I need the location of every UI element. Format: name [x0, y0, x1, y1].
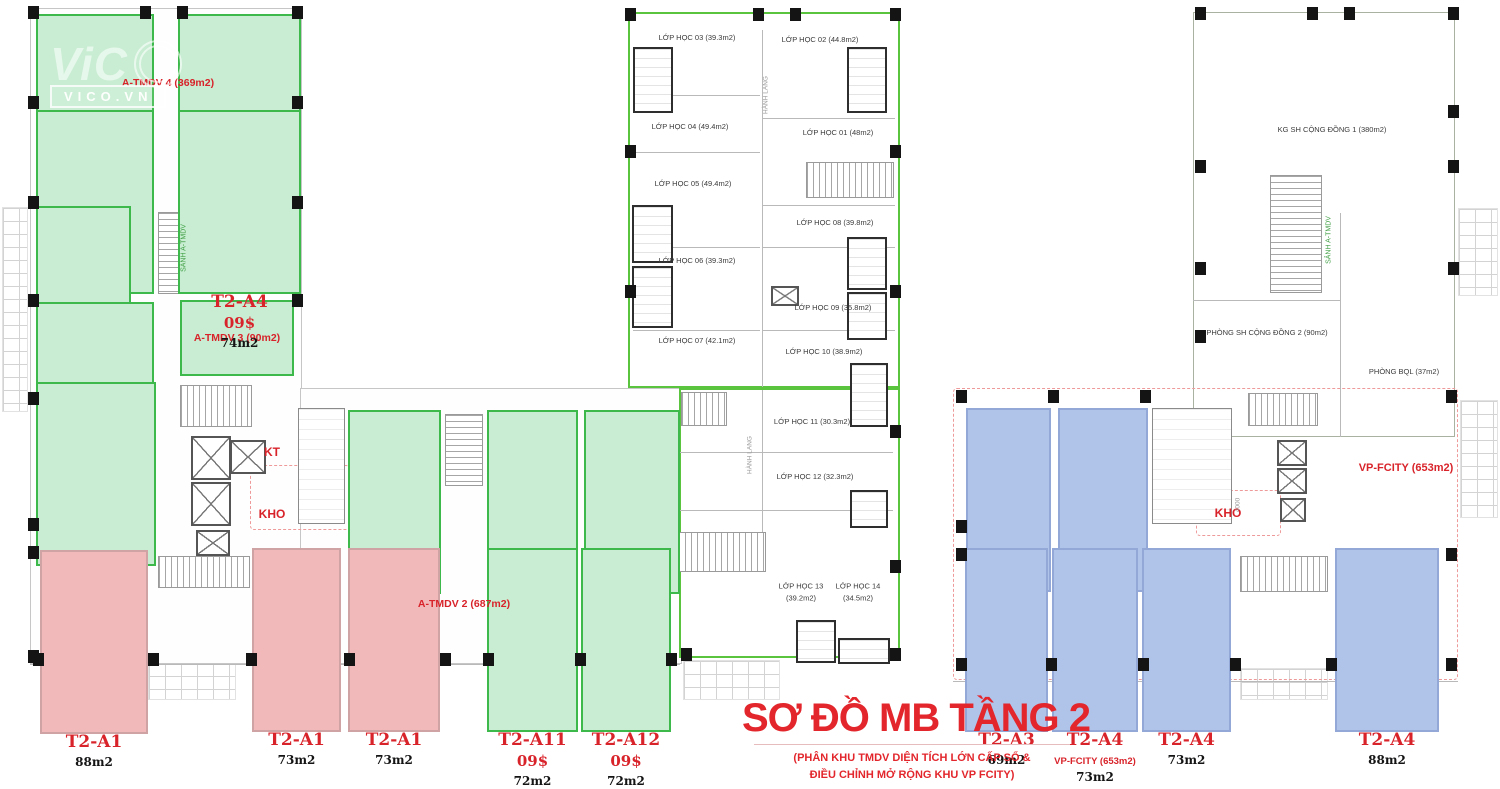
column-marker [1448, 7, 1459, 20]
staircase [806, 162, 894, 198]
column-marker [1344, 7, 1355, 20]
unit-t2-a12: T2-A1209$72m2 [581, 548, 671, 732]
column-marker [666, 653, 677, 666]
service-core [298, 408, 345, 524]
unit-t2-a1: T2-A188m2 [40, 550, 148, 734]
column-marker [956, 548, 967, 561]
title-divider [754, 744, 1070, 745]
column-marker [1046, 658, 1057, 671]
watermark: ViC VICO.VN [50, 40, 182, 108]
unit-t2-a7: T2-A709$90m2A-TMDV 1 (264m2) [36, 382, 156, 566]
elevator [1280, 498, 1306, 522]
column-marker [1138, 658, 1149, 671]
column-marker [1195, 7, 1206, 20]
unit-area: 73m2 [375, 753, 413, 769]
column-marker [292, 196, 303, 209]
column-marker [28, 546, 39, 559]
hatch-area [1460, 400, 1498, 518]
wall-line [633, 152, 760, 153]
room-label: LỚP HỌC 03 (39.3m2) [659, 32, 736, 44]
elevator [1277, 440, 1307, 466]
column-marker [28, 392, 39, 405]
plan-title: SƠ ĐỒ MB TẦNG 2 [742, 696, 1082, 741]
column-marker [1446, 658, 1457, 671]
column-marker [292, 6, 303, 19]
column-marker [1446, 390, 1457, 403]
column-marker [1230, 658, 1241, 671]
column-marker [1195, 262, 1206, 275]
plan-label: SẢNH A-TMDV [181, 224, 188, 272]
unit-area: 72m2 [607, 774, 645, 789]
room-label: LỚP HỌC 08 (39.8m2) [797, 217, 874, 229]
watermark-text: VICO.VN [50, 85, 166, 108]
wc-room [847, 237, 887, 290]
unit-name: T2-A1 [66, 732, 123, 753]
elevator [230, 440, 266, 474]
column-marker [1048, 390, 1059, 403]
column-marker [890, 285, 901, 298]
plan-title-block: SƠ ĐỒ MB TẦNG 2 (PHÂN KHU TMDV DIỆN TÍCH… [742, 696, 1082, 784]
elevator [1277, 468, 1307, 494]
column-marker [625, 145, 636, 158]
vico-logo-icon [134, 40, 182, 88]
watermark-ghost-text: ViC [50, 41, 128, 87]
wall-line [633, 330, 760, 331]
column-marker [140, 6, 151, 19]
elevator [191, 436, 231, 480]
column-marker [753, 8, 764, 21]
column-marker [890, 560, 901, 573]
column-marker [292, 96, 303, 109]
unit-t2-a4: T2-A488m2 [1335, 548, 1439, 732]
plan-label: SẢNH A-TMDV [1326, 216, 1333, 264]
hatch-area [683, 660, 780, 700]
column-marker [956, 520, 967, 533]
room-label: LỚP HỌC 11 (30.3m2) [774, 416, 850, 428]
column-marker [440, 653, 451, 666]
column-marker [292, 294, 303, 307]
column-marker [344, 653, 355, 666]
wc-room [850, 363, 888, 427]
room-label: LỚP HỌC 07 (42.1m2) [659, 335, 736, 347]
wc-room [850, 490, 888, 528]
column-marker [1448, 105, 1459, 118]
unit-area: 73m2 [1168, 753, 1206, 769]
column-marker [1307, 7, 1318, 20]
unit-name: T2-A12 [592, 730, 660, 751]
room-label: LỚP HỌC 09 (35.8m2) [795, 302, 872, 314]
room-label: LỚP HỌC 02 (44.8m2) [782, 34, 859, 46]
unit-price: 09$ [517, 751, 548, 771]
column-marker [177, 6, 188, 19]
column-marker [28, 294, 39, 307]
staircase [681, 392, 727, 426]
column-marker [956, 390, 967, 403]
column-marker [1140, 390, 1151, 403]
column-marker [483, 653, 494, 666]
unit-t2-a11: T2-A1109$72m2 [487, 548, 578, 732]
column-marker [1448, 262, 1459, 275]
floor-plan-canvas: ViC VICO.VN SƠ ĐỒ MB TẦNG 2 (PHÂN KHU TM… [0, 0, 1500, 786]
wall-line [680, 452, 893, 453]
column-marker [890, 648, 901, 661]
room-label: LỚP HỌC 04 (49.4m2) [652, 121, 729, 133]
hatch-area [1458, 208, 1498, 296]
unit-area: 73m2 [278, 753, 316, 769]
elevator [196, 530, 230, 556]
unit-area: 88m2 [1368, 753, 1406, 769]
room-label: PHÒNG BQL (37m2) [1369, 366, 1439, 378]
room-label: LỚP HỌC 10 (38.9m2) [786, 346, 863, 358]
staircase [180, 385, 252, 427]
staircase [678, 532, 766, 572]
column-marker [575, 653, 586, 666]
column-marker [1448, 160, 1459, 173]
column-marker [790, 8, 801, 21]
unit-area: 72m2 [514, 774, 552, 789]
column-marker [890, 8, 901, 21]
wc-room [632, 266, 673, 328]
plan-label: HÀNH LANG [747, 436, 754, 474]
plan-subtitle-line1: (PHÂN KHU TMDV DIỆN TÍCH LỚN CẤP SỔ & [742, 750, 1082, 767]
wall-line [762, 390, 763, 555]
wall-line [762, 205, 895, 206]
column-marker [28, 518, 39, 531]
room-label: LỚP HỌC 01 (48m2) [803, 127, 874, 139]
column-marker [33, 653, 44, 666]
room-label: LỚP HỌC 12 (32.3m2) [777, 471, 854, 483]
room-label: LỚP HỌC 14(34.5m2) [836, 580, 881, 603]
room-label: LỚP HỌC 05 (49.4m2) [655, 178, 732, 190]
unit-price: 09$ [224, 313, 255, 333]
plan-label: KT [264, 445, 280, 459]
column-marker [1195, 330, 1206, 343]
column-marker [1195, 160, 1206, 173]
wall-line [762, 118, 895, 119]
unit-t2-a4: T2-A409$74m2 [178, 110, 301, 294]
room-label: PHÒNG SH CỘNG ĐỒNG 2 (90m2) [1206, 327, 1327, 339]
unit-area: 74m2 [221, 336, 259, 352]
staircase [158, 556, 250, 588]
column-marker [246, 653, 257, 666]
column-marker [625, 285, 636, 298]
unit-price: 09$ [610, 751, 641, 771]
wc-room [838, 638, 890, 664]
unit-name: T2-A4 [211, 292, 268, 313]
staircase [1270, 175, 1322, 293]
wc-room [633, 47, 673, 113]
staircase [1240, 556, 1328, 592]
column-marker [148, 653, 159, 666]
plan-label: HÀNH LANG [763, 76, 770, 114]
wc-room [847, 47, 887, 113]
column-marker [28, 96, 39, 109]
column-marker [1326, 658, 1337, 671]
room-label: KG SH CỘNG ĐỒNG 1 (380m2) [1278, 124, 1387, 136]
hatch-area [2, 207, 28, 412]
elevator [191, 482, 231, 526]
plan-label: VP-FCITY (653m2) [1359, 462, 1454, 474]
unit-name: T2-A4 [1158, 730, 1215, 751]
unit-name: T2-A4 [1359, 730, 1416, 751]
unit-t2-a4: T2-A473m2 [1142, 548, 1231, 732]
unit-name: T2-A11 [498, 730, 566, 751]
unit-name: T2-A1 [366, 730, 423, 751]
plan-label: 4000 [1235, 498, 1242, 512]
wc-room [847, 292, 887, 340]
wc-room [796, 620, 836, 663]
column-marker [625, 8, 636, 21]
column-marker [1446, 548, 1457, 561]
plan-subtitle-line2: ĐIỀU CHỈNH MỞ RỘNG KHU VP FCITY) [742, 767, 1082, 784]
plan-label: KHO [259, 507, 286, 521]
unit-t2-a1: T2-A173m2 [252, 548, 341, 732]
staircase [445, 414, 483, 486]
column-marker [681, 648, 692, 661]
column-marker [956, 658, 967, 671]
column-marker [28, 196, 39, 209]
unit-area: 88m2 [75, 755, 113, 771]
plan-label: A-TMDV 2 (687m2) [418, 598, 510, 610]
staircase [1248, 393, 1318, 426]
column-marker [890, 425, 901, 438]
unit-t2-a1: T2-A173m2 [348, 548, 440, 732]
wall-line [1193, 300, 1340, 301]
column-marker [28, 6, 39, 19]
room-label: LỚP HỌC 06 (39.3m2) [659, 255, 736, 267]
room-label: LỚP HỌC 13(39.2m2) [779, 580, 824, 603]
column-marker [890, 145, 901, 158]
hatch-area [148, 662, 236, 700]
wall-line [1340, 213, 1341, 437]
unit-name: T2-A1 [268, 730, 325, 751]
